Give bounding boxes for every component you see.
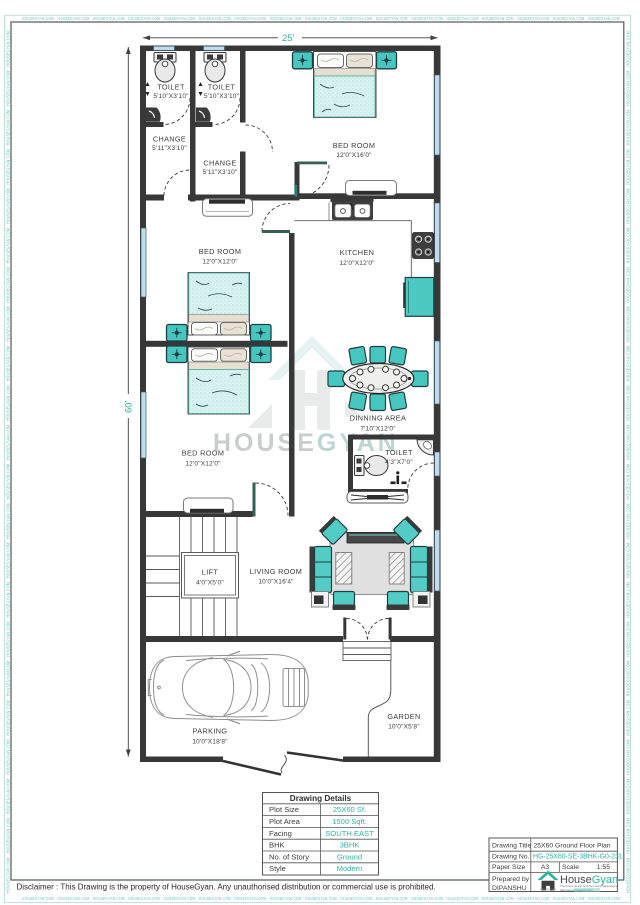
svg-text:HOUSEGYAN.COM HOUSEGYAN.COM: HOUSEGYAN.COM HOUSEGYAN.COM HOUSEGYAN.CO…	[6, 31, 11, 893]
svg-text:HOUSEGYAN: HOUSEGYAN	[213, 429, 399, 457]
svg-text:BED ROOM: BED ROOM	[182, 449, 225, 458]
svg-text:Scale: Scale	[562, 864, 579, 871]
svg-text:Ground: Ground	[337, 852, 362, 861]
svg-text:A3: A3	[541, 864, 550, 871]
svg-text:Drawing No.: Drawing No.	[492, 854, 530, 861]
svg-text:BED ROOM: BED ROOM	[199, 247, 242, 256]
svg-text:5'11"X3'10": 5'11"X3'10"	[203, 169, 238, 176]
svg-text:12'0"X12'0": 12'0"X12'0"	[339, 260, 375, 267]
svg-text:Prepared by: Prepared by	[492, 876, 530, 883]
svg-text:BED ROOM: BED ROOM	[333, 141, 376, 150]
svg-text:Style: Style	[269, 864, 286, 873]
svg-text:PARKING: PARKING	[193, 727, 228, 736]
svg-text:Facing: Facing	[269, 829, 292, 838]
svg-text:5'10"X3'10": 5'10"X3'10"	[153, 93, 189, 100]
svg-text:12'0"X12'0": 12'0"X12'0"	[202, 259, 238, 266]
svg-text:25': 25'	[282, 33, 295, 44]
svg-text:10'0"X16'4": 10'0"X16'4"	[258, 579, 294, 586]
svg-text:TOILET: TOILET	[208, 83, 236, 92]
svg-text:Plot Area: Plot Area	[269, 817, 301, 826]
svg-text:60': 60'	[124, 400, 135, 413]
svg-text:DINNING AREA: DINNING AREA	[350, 414, 407, 423]
svg-text:5'11"X3'10": 5'11"X3'10"	[152, 145, 187, 152]
svg-text:HOUSEGYAN.COM HOUSEGYAN.COM: HOUSEGYAN.COM HOUSEGYAN.COM HOUSEGYAN.CO…	[22, 896, 620, 901]
svg-text:HOUSEGYAN: HOUSEGYAN	[540, 888, 557, 892]
svg-text:Drawing Details: Drawing Details	[290, 794, 352, 803]
svg-text:5'10"X3'10": 5'10"X3'10"	[204, 93, 240, 100]
svg-text:GARDEN: GARDEN	[387, 712, 420, 721]
svg-text:4'3"X7'0": 4'3"X7'0"	[385, 459, 413, 466]
svg-text:3BHK: 3BHK	[340, 841, 360, 850]
svg-text:Plot Size: Plot Size	[269, 805, 299, 814]
svg-text:4'0"X5'0": 4'0"X5'0"	[196, 580, 224, 587]
svg-text:LIVING ROOM: LIVING ROOM	[250, 567, 303, 576]
svg-text:HOUSEGYAN.COM HOUSEGYAN.COM: HOUSEGYAN.COM HOUSEGYAN.COM HOUSEGYAN.CO…	[22, 16, 620, 21]
svg-text:KITCHEN: KITCHEN	[340, 248, 374, 257]
svg-text:LIFT: LIFT	[202, 568, 219, 577]
svg-text:1500 Sqft.: 1500 Sqft.	[332, 817, 367, 826]
svg-text:7'10"X12'0": 7'10"X12'0"	[360, 426, 396, 433]
svg-text:CHANGE: CHANGE	[203, 159, 236, 168]
svg-text:25X60 Sf.: 25X60 Sf.	[333, 805, 366, 814]
svg-text:No. of Story: No. of Story	[269, 852, 309, 861]
svg-text:1:55: 1:55	[597, 864, 610, 871]
svg-text:12'0"X16'0": 12'0"X16'0"	[336, 152, 372, 159]
svg-text:TOILET: TOILET	[157, 83, 185, 92]
svg-text:25X60 Ground Floor Plan: 25X60 Ground Floor Plan	[534, 842, 611, 849]
svg-text:Paper Size: Paper Size	[492, 864, 525, 871]
svg-text:CHANGE: CHANGE	[153, 135, 186, 144]
svg-text:DIPANSHU: DIPANSHU	[492, 885, 527, 892]
svg-text:Drawing Title: Drawing Title	[492, 842, 532, 849]
svg-text:visit www.Housegyan.com: visit www.Housegyan.com	[560, 888, 593, 892]
svg-text:HG-25X60-SE-3BHK-G0-231: HG-25X60-SE-3BHK-G0-231	[533, 854, 623, 861]
svg-text:Modern: Modern	[337, 864, 363, 873]
svg-text:TOILET: TOILET	[385, 448, 413, 457]
svg-text:Disclaimer : This Drawing is t: Disclaimer : This Drawing is the propert…	[17, 883, 436, 892]
svg-text:BHK: BHK	[269, 841, 285, 850]
svg-text:10'0"X18'8": 10'0"X18'8"	[192, 739, 228, 746]
svg-text:HOUSEGYAN.COM HOUSEGYAN.COM: HOUSEGYAN.COM HOUSEGYAN.COM HOUSEGYAN.CO…	[625, 31, 630, 893]
svg-text:SOUTH EAST: SOUTH EAST	[325, 829, 374, 838]
svg-text:10'0"X5'8": 10'0"X5'8"	[388, 724, 420, 731]
svg-text:12'0"X12'0": 12'0"X12'0"	[185, 461, 221, 468]
